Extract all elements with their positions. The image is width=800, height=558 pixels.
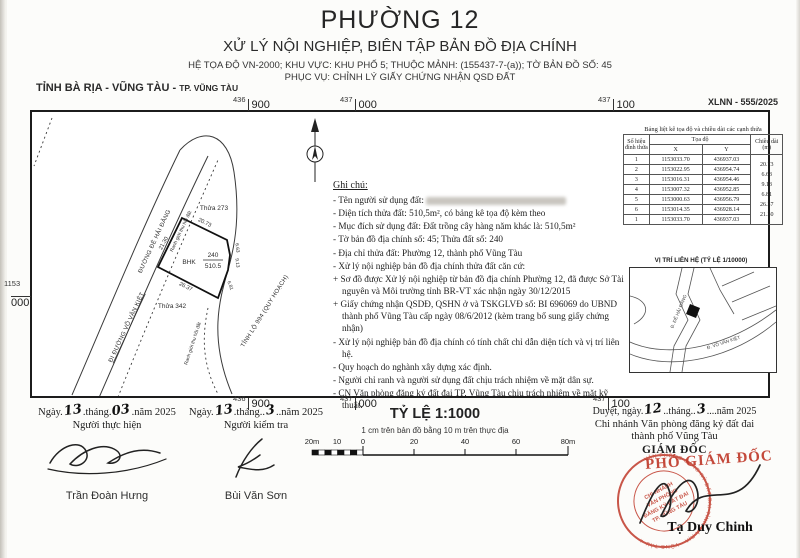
loc-road-line [630, 322, 776, 362]
approval-org-line1: Chi nhánh Văn phòng đăng ký đất đai [552, 419, 797, 430]
approval-date: Duyệt, ngày.12..tháng..3....năm 2025 [552, 403, 797, 418]
director-name: Tạ Duy Chinh [622, 520, 798, 536]
note-line: - Xử lý nội nghiệp bản đồ địa chính thửa… [333, 260, 625, 272]
point-id: 6 [624, 205, 650, 215]
col-header-coord: Tọa độ [649, 135, 751, 145]
date-text: Ngày. [38, 407, 63, 418]
checker-signature [216, 431, 296, 483]
loc-street [732, 286, 770, 302]
note-line: - Địa chỉ thửa đất: Phường 12, thành phố… [333, 247, 625, 259]
notes-section: Ghi chú: - Tên người sử dụng đất: - Diện… [333, 180, 625, 412]
edge-length: 20.73 [751, 160, 782, 170]
scale-tick-label: 40 [461, 437, 469, 446]
scale-tick-label: 10 [333, 437, 341, 446]
parcel-landuse-code: BHK [182, 259, 196, 266]
executor-name: Trần Đoàn Hưng [28, 490, 186, 502]
grid-label-top-2: 437000 [340, 95, 377, 109]
handwritten-day: 12 [642, 401, 664, 419]
point-id: 1 [624, 155, 650, 165]
scale-tick-label: 0 [361, 437, 365, 446]
coordinate-system-line: HỆ TỌA ĐỘ VN-2000; KHU VỰC: KHU PHỐ 5; T… [0, 60, 800, 71]
coord-x: 1153022.95 [649, 165, 702, 175]
date-text: ....năm 2025 [707, 406, 757, 417]
handwritten-day: 13 [213, 402, 235, 420]
scale-tick-label: 20m [305, 437, 320, 446]
scale-bar-checker [312, 450, 363, 455]
date-text: .tháng.. [234, 407, 265, 418]
note-line: - Tên người sử dụng đất: [333, 194, 625, 206]
recovery-boundary-label-2: Ranh giới thu hồi đất [183, 321, 203, 366]
coord-y: 436937.03 [702, 215, 751, 225]
executor-role: Người thực hiện [28, 420, 186, 431]
parcel-240-polygon [158, 218, 230, 298]
point-id: 1 [624, 215, 650, 225]
province-name: TỈNH BÀ RỊA - VŨNG TÀU [36, 82, 169, 94]
recovery-boundary-dotted-line [116, 160, 218, 396]
loc-road-line [630, 310, 776, 350]
handwritten-month: 3 [695, 401, 708, 417]
corner-boundary-dotted-line [34, 118, 52, 166]
grid-label-left: 1153000 [4, 280, 34, 309]
approval-org-line2: thành phố Vũng Tàu [552, 431, 797, 442]
point-id: 2 [624, 165, 650, 175]
dimension-right-1: 6.63 [234, 243, 241, 253]
date-text: .tháng. [83, 407, 112, 418]
edge-length: 21.30 [751, 210, 782, 220]
page-title: PHƯỜNG 12 [0, 6, 800, 35]
coord-y: 436937.03 [702, 155, 751, 165]
grid-value: 000 [355, 99, 377, 111]
scan-shadow-right [796, 0, 800, 558]
province-label: TỈNH BÀ RỊA - VŨNG TÀU - TP. VŨNG TÀU [36, 82, 238, 94]
executor-date: Ngày.13.tháng.03.năm 2025 [28, 404, 186, 419]
scale-tick-label: 60 [512, 437, 520, 446]
coordinate-table-title: Bảng liệt kê tọa độ và chiều dài các cạn… [623, 126, 783, 133]
table-row: 11153033.70436937.03 20.73 6.63 9.13 6.8… [624, 155, 783, 165]
handwritten-month: 03 [110, 402, 132, 420]
cadastral-document-page: PHƯỜNG 12 XỬ LÝ NỘI NGHIỆP, BIÊN TẬP BẢN… [0, 0, 800, 558]
grid-value: 100 [613, 99, 635, 111]
executor-block: Ngày.13.tháng.03.năm 2025 Người thực hiệ… [28, 404, 186, 502]
note-line: - Xử lý nội nghiệp bản đồ địa chính có t… [333, 336, 625, 360]
grid-zone: 437 [598, 95, 611, 104]
parcel-number: 240 [208, 252, 219, 259]
neighbor-parcel-273-label: Thửa 273 [200, 204, 229, 212]
grid-zone: 436 [233, 95, 246, 104]
coord-x: 1153007.32 [649, 185, 702, 195]
provincial-road-994-label: TỈNH LỘ 994 (QUY HOẠCH) [239, 274, 290, 349]
grid-label-top-1: 436900 [233, 95, 270, 109]
dimension-right-2: 9.13 [234, 258, 241, 268]
redacted-owner-name [426, 197, 566, 205]
coord-y: 436954.74 [702, 165, 751, 175]
coord-y: 436952.85 [702, 185, 751, 195]
grid-zone: 437 [340, 95, 353, 104]
col-header-x: X [649, 145, 702, 155]
executor-signature [42, 431, 172, 483]
coord-x: 1153033.70 [649, 215, 702, 225]
note-line: - Người chỉ ranh và người sử dụng đất ch… [333, 374, 625, 386]
edge-length: 26.37 [751, 200, 782, 210]
point-id: 5 [624, 195, 650, 205]
road-line-left [72, 150, 180, 395]
dimension-right-3: 6.81 [226, 280, 235, 291]
handwritten-day: 13 [62, 402, 84, 420]
col-header-length: Chiều dài (m) [751, 135, 783, 155]
recovery-boundary-dotted-line-2 [204, 308, 218, 394]
location-map: Đ. ĐÊ HẢI ĐĂNG Đ. VÕ VĂN KIỆT [629, 267, 777, 373]
date-text: .năm 2025 [132, 407, 176, 418]
edge-length: 6.63 [751, 170, 782, 180]
grid-value: 000 [11, 296, 31, 309]
edge-length: 9.13 [751, 180, 782, 190]
col-header-y: Y [702, 145, 751, 155]
coord-x: 1153014.35 [649, 205, 702, 215]
coord-y: 436928.14 [702, 205, 751, 215]
note-line: - Quy hoạch do nghành xây dựng xác định. [333, 361, 625, 373]
note-line: + Sơ đồ được Xử lý nội nghiệp từ bản đồ … [333, 273, 625, 297]
note-text: - Tên người sử dụng đất: [333, 195, 424, 205]
location-map-title: VỊ TRÍ LIÊN HỆ (TỶ LỆ 1/10000) [623, 257, 779, 264]
coord-y: 436954.46 [702, 175, 751, 185]
coordinate-table: Bảng liệt kê tọa độ và chiều dài các cạn… [623, 126, 783, 225]
point-id: 4 [624, 185, 650, 195]
grid-value: 900 [248, 99, 270, 111]
location-map-drawing: Đ. ĐÊ HẢI ĐĂNG Đ. VÕ VĂN KIỆT [630, 268, 776, 372]
parcel-area: 510.5 [205, 263, 222, 270]
scale-title: TỶ LỆ 1:1000 [285, 406, 585, 422]
scale-block: TỶ LỆ 1:1000 1 cm trên bản đồ bằng 10 m … [285, 406, 585, 470]
edge-length: 6.81 [751, 190, 782, 200]
note-line: - Mục đích sử dụng đất: Đất trồng cây hà… [333, 220, 625, 232]
point-id: 3 [624, 175, 650, 185]
loc-road-line [682, 268, 700, 372]
col-header-point: Số hiệu đỉnh thửa [624, 135, 650, 155]
loc-street [722, 272, 754, 286]
date-text: ..tháng.. [663, 406, 695, 417]
scale-caption: 1 cm trên bản đồ bằng 10 m trên thực địa [285, 426, 585, 435]
coord-x: 1153000.63 [649, 195, 702, 205]
date-text: Ngày. [189, 407, 214, 418]
north-arrow-icon [307, 118, 323, 182]
coord-x: 1153016.31 [649, 175, 702, 185]
note-line: + Giấy chứng nhận QSDĐ, QSHN ở và TSKGLV… [333, 298, 625, 334]
date-text: Duyệt, ngày. [593, 406, 644, 417]
loc-street [742, 306, 776, 320]
city-name: TP. VŨNG TÀU [179, 83, 238, 93]
grid-label-top-3: 437100 [598, 95, 635, 109]
scale-tick-label: 20 [410, 437, 418, 446]
coord-x: 1153033.70 [649, 155, 702, 165]
page-subtitle: XỬ LÝ NỘI NGHIỆP, BIÊN TẬP BẢN ĐỒ ĐỊA CH… [0, 38, 800, 55]
coord-y: 436956.79 [702, 195, 751, 205]
grid-zone: 1153 [4, 279, 20, 288]
province-dash: - [169, 82, 179, 94]
note-line: - Tờ bản đồ địa chính số: 45; Thửa đất s… [333, 233, 625, 245]
handwritten-month: 3 [264, 402, 277, 418]
checker-name: Bùi Văn Sơn [186, 490, 326, 502]
edge-lengths: 20.73 6.63 9.13 6.81 26.37 21.30 [751, 155, 783, 225]
scale-bar: 20m 10 0 20 40 60 80m [290, 435, 580, 465]
document-number: XLNN - 555/2025 [708, 97, 778, 107]
note-line: - Diện tích thửa đất: 510,5m², có bảng k… [333, 207, 625, 219]
neighbor-parcel-342-label: Thửa 342 [158, 302, 187, 310]
loc-boundary [710, 268, 734, 314]
notes-title: Ghi chú: [333, 180, 625, 191]
loc-boundary [630, 296, 646, 324]
